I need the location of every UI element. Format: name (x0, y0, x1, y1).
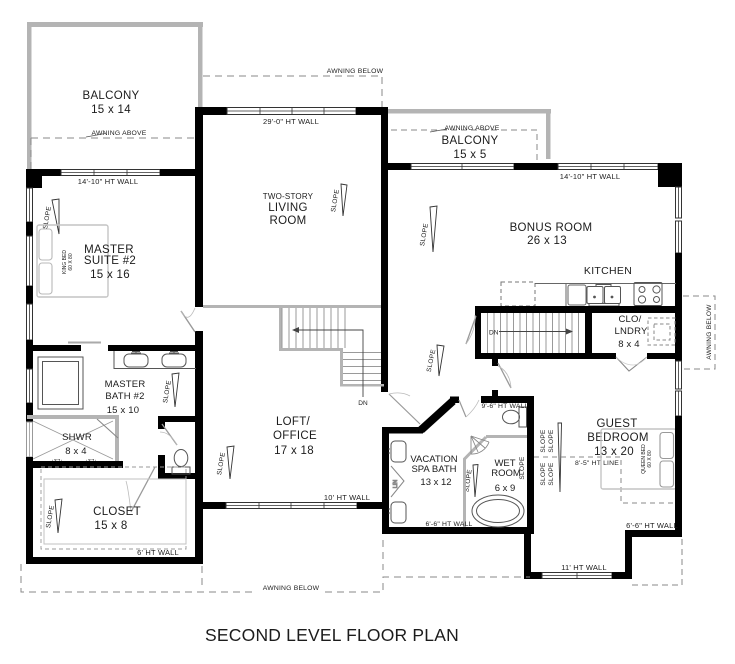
svg-text:BONUS ROOM: BONUS ROOM (510, 222, 593, 234)
svg-text:13 x 20: 13 x 20 (594, 446, 634, 458)
svg-text:LIN: LIN (393, 480, 399, 489)
svg-text:BALCONY: BALCONY (82, 90, 139, 102)
svg-text:BEDROOM: BEDROOM (587, 432, 649, 444)
svg-text:LIVING: LIVING (268, 202, 308, 214)
svg-text:13 x 12: 13 x 12 (420, 477, 451, 488)
svg-text:SLOPE: SLOPE (548, 429, 555, 453)
svg-text:6'-6" HT WALL: 6'-6" HT WALL (425, 521, 472, 528)
svg-text:OFFICE: OFFICE (273, 430, 317, 442)
svg-text:AWNING ABOVE: AWNING ABOVE (91, 130, 146, 137)
svg-text:17 x 18: 17 x 18 (274, 445, 314, 457)
svg-text:AWNING ABOVE: AWNING ABOVE (444, 125, 499, 132)
svg-text:26 x 13: 26 x 13 (527, 235, 567, 247)
svg-text:10' HT WALL: 10' HT WALL (324, 493, 370, 502)
svg-text:11' HT WALL: 11' HT WALL (561, 563, 607, 572)
svg-text:BATH #2: BATH #2 (105, 391, 144, 402)
svg-text:15 x 5: 15 x 5 (453, 149, 486, 161)
svg-text:SLOPE: SLOPE (519, 456, 526, 480)
svg-text:8 x 4: 8 x 4 (65, 446, 87, 457)
svg-text:MASTER: MASTER (105, 379, 146, 390)
svg-text:15 x 16: 15 x 16 (90, 269, 130, 281)
svg-text:15 x 14: 15 x 14 (91, 104, 131, 116)
svg-text:SLOPE: SLOPE (548, 462, 555, 486)
svg-text:SLOPE: SLOPE (540, 462, 547, 486)
svg-text:6' HT WALL: 6' HT WALL (137, 548, 179, 557)
svg-text:15 x 8: 15 x 8 (94, 520, 127, 532)
svg-text:BALCONY: BALCONY (441, 135, 498, 147)
svg-text:AWNING BELOW: AWNING BELOW (327, 68, 384, 75)
svg-text:KITCHEN: KITCHEN (584, 265, 632, 277)
svg-text:SPA BATH: SPA BATH (411, 464, 456, 475)
svg-text:14'-10" HT WALL: 14'-10" HT WALL (78, 177, 138, 186)
svg-text:ROOM: ROOM (491, 468, 521, 479)
svg-text:AWNING BELOW: AWNING BELOW (263, 585, 320, 592)
svg-text:CLO/: CLO/ (619, 314, 642, 325)
svg-text:15 x 10: 15 x 10 (107, 405, 140, 416)
svg-text:60 X 80: 60 X 80 (68, 253, 74, 270)
svg-text:LOFT/: LOFT/ (276, 416, 311, 428)
svg-text:6'-6" HT WALL: 6'-6" HT WALL (626, 521, 678, 530)
svg-text:SHWR: SHWR (62, 432, 92, 443)
svg-text:ROOM: ROOM (270, 215, 307, 227)
svg-text:SUITE #2: SUITE #2 (84, 255, 136, 267)
svg-text:TWO-STORY: TWO-STORY (263, 192, 314, 201)
svg-text:29'-0" HT WALL: 29'-0" HT WALL (263, 117, 319, 126)
svg-text:GUEST: GUEST (596, 418, 637, 430)
svg-text:8'-5" HT LINE: 8'-5" HT LINE (575, 460, 619, 467)
svg-text:DN: DN (489, 330, 499, 337)
svg-text:SLOPE: SLOPE (540, 429, 547, 453)
svg-text:8 x 4: 8 x 4 (618, 339, 640, 350)
svg-text:LNDRY: LNDRY (614, 326, 647, 337)
svg-text:SECOND LEVEL FLOOR PLAN: SECOND LEVEL FLOOR PLAN (205, 625, 459, 645)
svg-text:60 X 80: 60 X 80 (647, 450, 653, 467)
svg-text:6 x 9: 6 x 9 (495, 483, 516, 494)
svg-text:DN: DN (358, 400, 368, 407)
svg-text:CLOSET: CLOSET (93, 506, 141, 518)
svg-text:AWNING BELOW: AWNING BELOW (706, 304, 713, 360)
svg-text:14'-10" HT WALL: 14'-10" HT WALL (560, 172, 620, 181)
